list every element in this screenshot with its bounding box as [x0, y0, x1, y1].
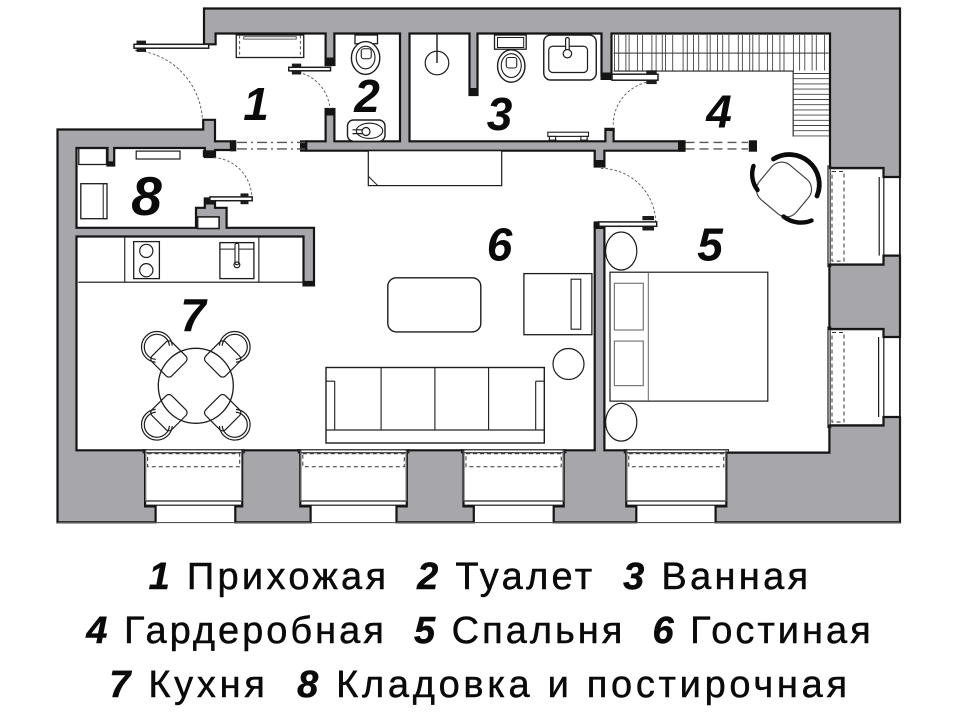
svg-text:4: 4 [705, 86, 732, 138]
svg-text:1: 1 [243, 78, 269, 130]
svg-text:2: 2 [353, 70, 380, 122]
svg-text:5: 5 [697, 219, 724, 271]
svg-text:8: 8 [131, 165, 162, 227]
svg-text:6: 6 [487, 219, 513, 271]
svg-text:7: 7 [180, 289, 208, 341]
svg-text:7 Кухня 8 Кладовка и постироч: 7 Кухня 8 Кладовка и постирочная [109, 664, 850, 706]
svg-text:3: 3 [487, 88, 513, 140]
svg-text:4 Гардеробная 5 Спальня 6 Го: 4 Гардеробная 5 Спальня 6 Гостиная [85, 610, 873, 652]
svg-text:1 Прихожая 2 Туалет 3 Ванная: 1 Прихожая 2 Туалет 3 Ванная [149, 556, 812, 598]
